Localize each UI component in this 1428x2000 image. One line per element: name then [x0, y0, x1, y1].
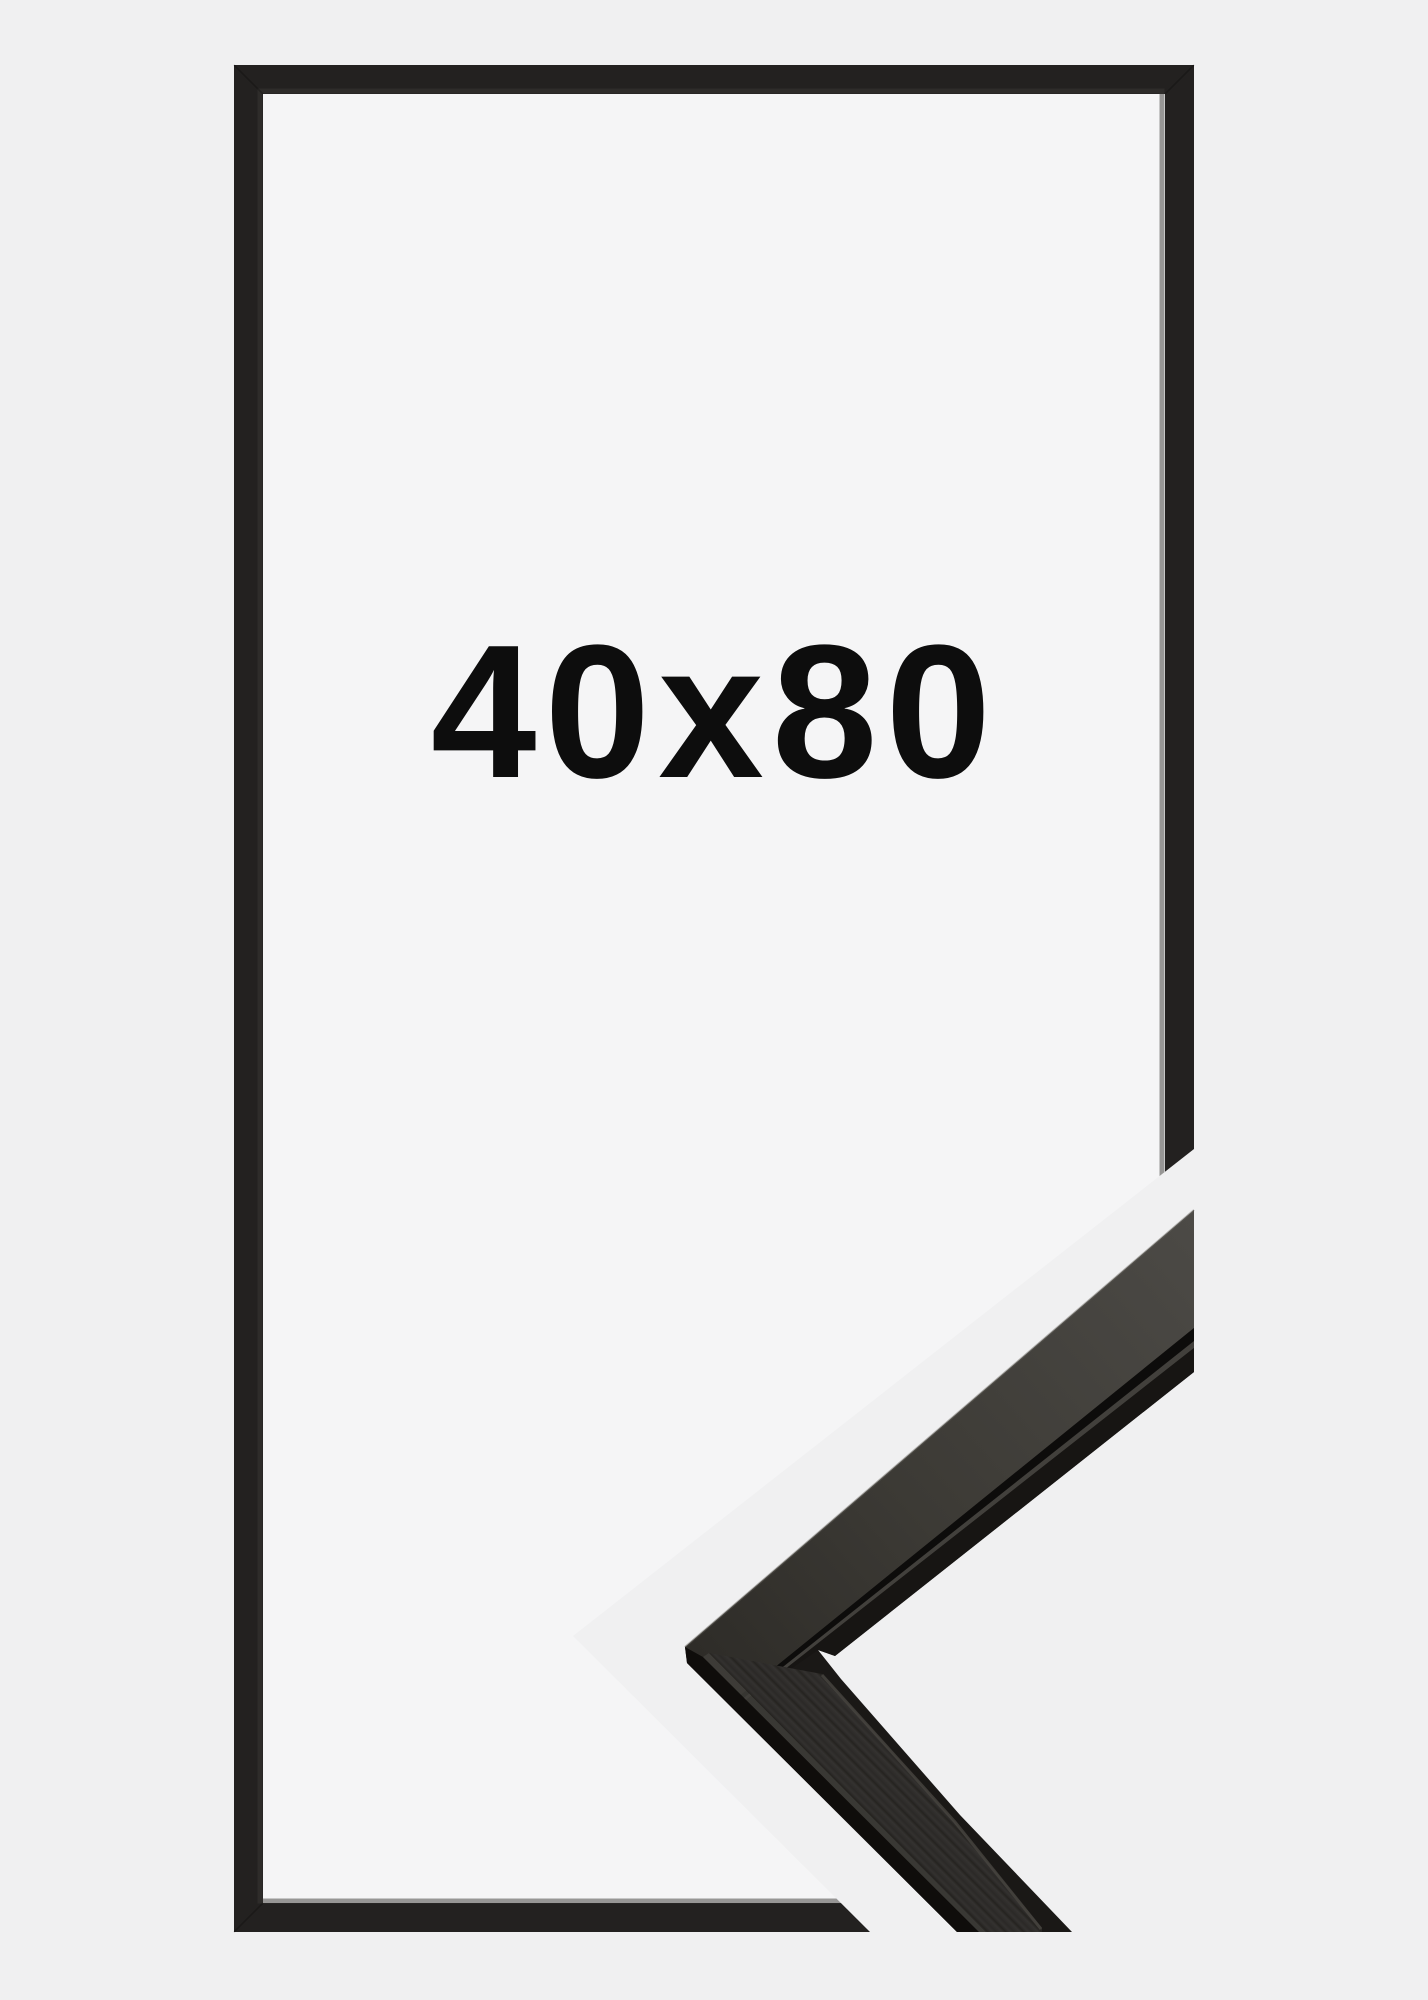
product-image: 40x80 [0, 0, 1428, 2000]
frame-product-render: 40x80 [0, 0, 1428, 2000]
size-label: 40x80 [431, 606, 999, 818]
